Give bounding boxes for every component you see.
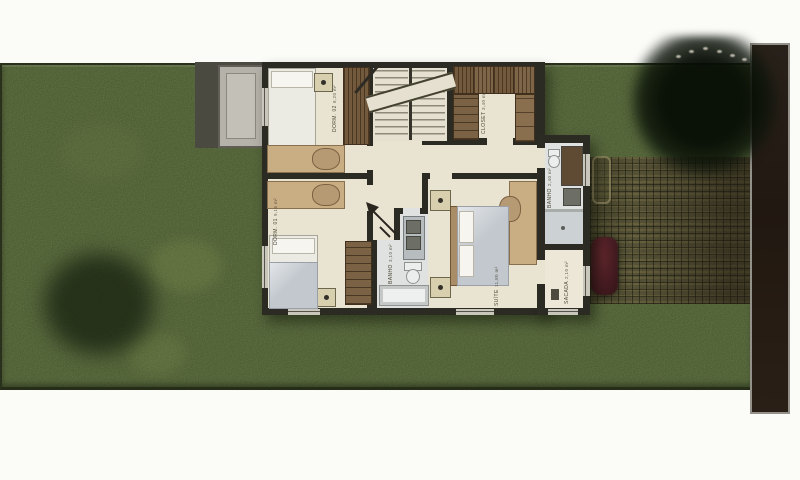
room-area: 3,40 m²	[481, 92, 486, 110]
desk	[509, 181, 537, 265]
street-strip	[750, 43, 790, 414]
tree-highlight	[689, 50, 694, 53]
pillow	[459, 211, 474, 243]
window	[583, 154, 590, 186]
room-label-closet: CLOSET 3,40 m²	[481, 98, 487, 134]
room-label-suite: SUÍTE 11,80 m²	[494, 276, 500, 306]
chair	[312, 148, 340, 170]
parked-car	[591, 237, 618, 295]
closet-cabinet	[453, 66, 475, 94]
sink	[406, 236, 421, 250]
door-opening	[537, 260, 545, 284]
entry-arrow-icon	[360, 198, 404, 240]
door-opening	[487, 138, 513, 145]
nightstand-lamp	[430, 277, 451, 298]
room-name: BANHO	[547, 188, 553, 208]
room-label-dorm2: DORM. 02 8,20 m²	[332, 86, 338, 132]
room-label-dorm1: DORM. 01 9,15 m²	[273, 203, 279, 245]
ceiling-light-icon	[314, 73, 333, 92]
shower-drain	[561, 226, 565, 230]
pillow	[459, 245, 474, 277]
floor-plan-page: DORM. 02 8,20 m² CLOSET 3,40 m² DORM. 01…	[0, 0, 800, 480]
stair-divider	[409, 68, 412, 140]
door-opening	[367, 146, 373, 170]
tree-highlight	[717, 50, 722, 53]
room-area: 3,10 m²	[388, 244, 393, 262]
window	[288, 309, 320, 315]
door-opening	[537, 148, 545, 168]
room-name: DORM. 02	[332, 105, 338, 132]
tall-cabinet	[515, 94, 535, 142]
tree-highlight	[730, 54, 735, 57]
terrace-inner	[226, 73, 256, 139]
room-area: 9,15 m²	[273, 198, 278, 216]
corridor-floor	[422, 145, 537, 173]
nightstand-lamp	[430, 190, 451, 211]
window	[583, 266, 590, 296]
closet-cabinet	[473, 66, 495, 94]
shower-divider	[545, 209, 583, 212]
utility-pad	[592, 156, 611, 204]
room-area: 2,10 m²	[564, 261, 569, 279]
room-area: 11,80 m²	[494, 267, 499, 288]
room-name: BANHO	[388, 264, 394, 284]
door-opening	[430, 173, 452, 179]
closet-cabinet	[453, 94, 479, 140]
room-name: CLOSET	[481, 112, 487, 134]
room-label-bath-social: BANHO 3,10 m²	[388, 258, 394, 284]
chair	[312, 184, 340, 206]
balcony-detail	[551, 289, 559, 300]
window	[262, 246, 268, 288]
lawn-light-patch	[150, 240, 222, 292]
sink	[406, 220, 421, 234]
pillow	[271, 71, 313, 88]
room-area: 2,40 m²	[547, 168, 552, 186]
closet-cabinet	[513, 66, 535, 94]
window	[548, 309, 578, 315]
window	[456, 309, 494, 315]
bathtub	[379, 285, 429, 306]
blanket	[269, 262, 318, 309]
room-label-sacada: SACADA 2,10 m²	[564, 272, 570, 304]
tree-highlight	[703, 47, 708, 50]
tree-highlight	[676, 55, 681, 58]
tree-highlight	[742, 58, 747, 61]
room-area: 8,20 m²	[332, 85, 337, 103]
toilet	[548, 155, 560, 168]
nightstand-lamp	[317, 288, 336, 307]
wardrobe	[345, 241, 372, 305]
room-name: DORM. 01	[273, 218, 279, 245]
laundry-fixture	[563, 188, 581, 206]
room-name: SUÍTE	[494, 289, 500, 306]
vanity-counter	[561, 146, 583, 186]
room-label-bath-suite: BANHO 2,40 m²	[547, 182, 553, 208]
door-opening	[403, 208, 420, 214]
lawn-light-patch	[128, 333, 186, 375]
lawn-light-patch	[60, 123, 144, 181]
toilet	[406, 269, 420, 284]
closet-cabinet	[493, 66, 515, 94]
room-name: SACADA	[564, 281, 570, 304]
